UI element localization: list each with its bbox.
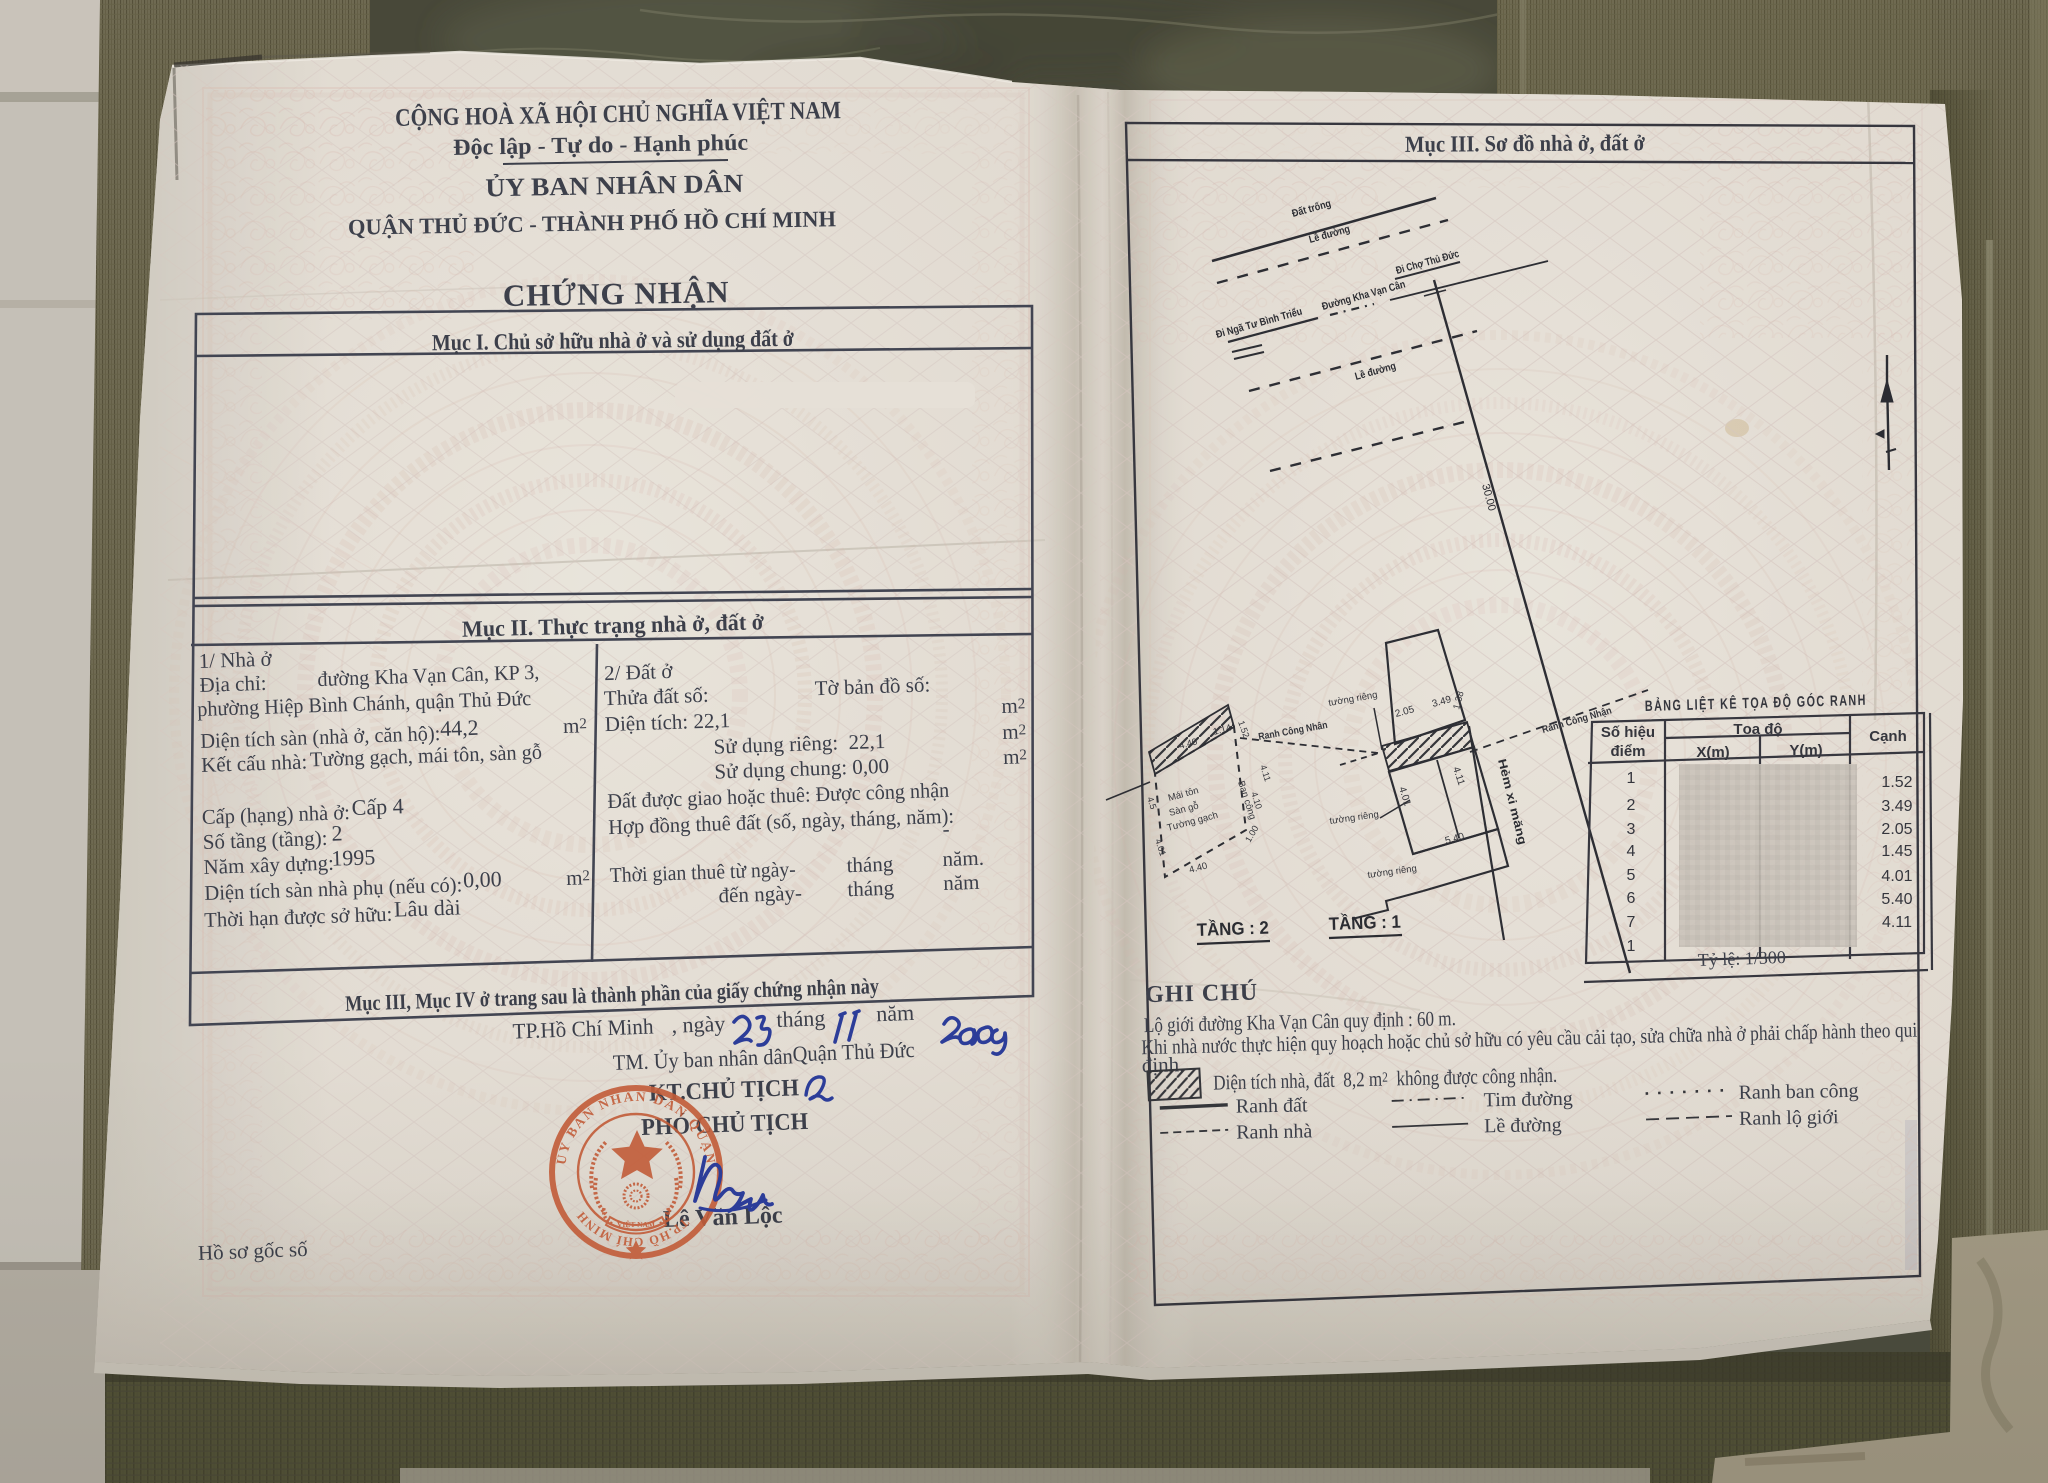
svg-text:VIỆT NAM: VIỆT NAM [617, 1220, 655, 1229]
